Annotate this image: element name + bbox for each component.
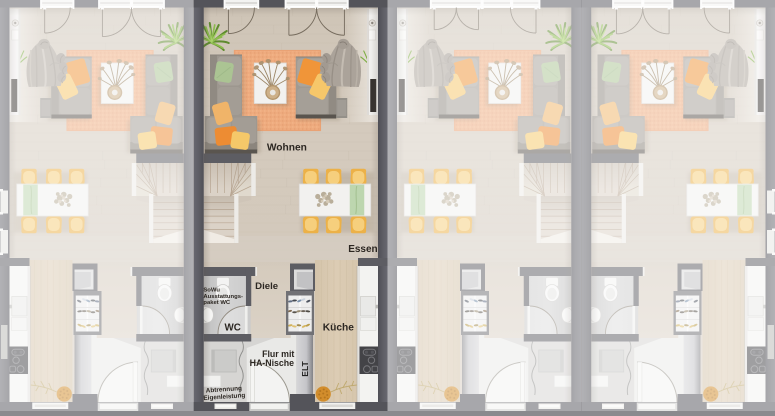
- svg-text:WC: WC: [224, 322, 240, 333]
- svg-text:Ausstattungs-: Ausstattungs-: [203, 294, 243, 300]
- svg-text:Diele: Diele: [255, 281, 278, 292]
- svg-text:Küche: Küche: [323, 323, 354, 334]
- svg-text:ELT: ELT: [300, 360, 310, 376]
- svg-text:SoWu: SoWu: [203, 288, 220, 294]
- svg-text:paket WC: paket WC: [203, 300, 231, 306]
- svg-text:HA-Nische: HA-Nische: [250, 358, 295, 368]
- svg-text:Wohnen: Wohnen: [267, 142, 307, 153]
- svg-text:Essen: Essen: [348, 244, 377, 255]
